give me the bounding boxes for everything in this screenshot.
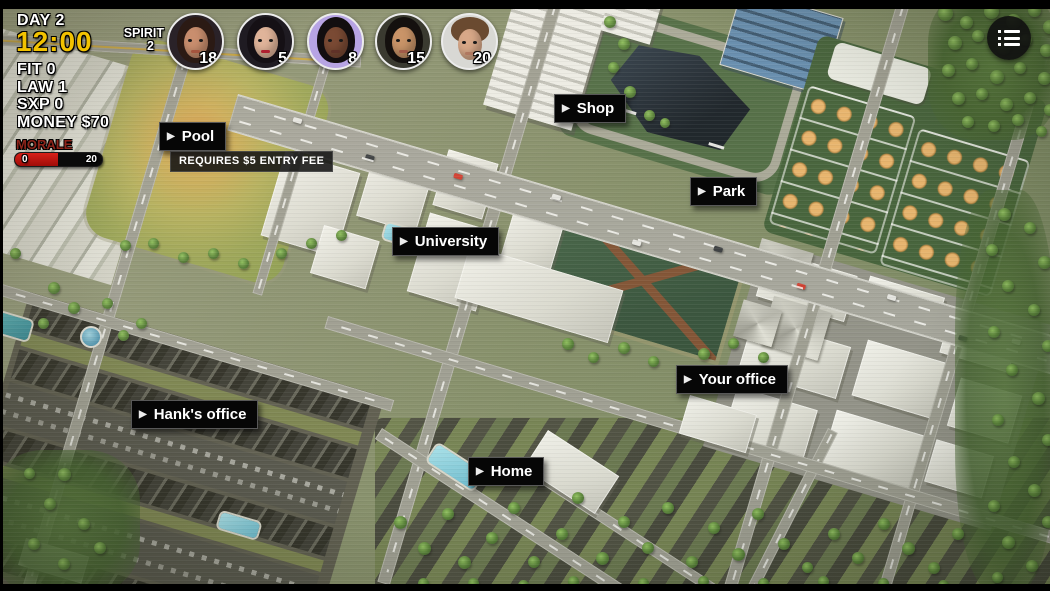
map-scenery [292, 117, 302, 124]
palm-tree [1006, 364, 1018, 376]
palm-tree [148, 238, 159, 249]
palm-tree [992, 414, 1004, 426]
portrait-value: 18 [199, 50, 217, 68]
palm-tree [48, 282, 60, 294]
palm-tree [596, 552, 609, 565]
map-scenery [887, 294, 897, 301]
palm-tree [10, 248, 21, 259]
map-scenery [453, 173, 463, 180]
palm-tree [1038, 72, 1050, 85]
location-label: Your office [699, 371, 776, 388]
location-university[interactable]: University [392, 227, 499, 256]
palm-tree [648, 356, 659, 367]
palm-tree [778, 538, 790, 550]
palm-tree [208, 248, 219, 259]
palm-tree [1036, 126, 1047, 137]
palm-tree [1002, 280, 1014, 292]
palm-tree [1028, 484, 1041, 497]
palm-tree [1008, 456, 1020, 468]
portrait-face [324, 27, 348, 58]
palm-tree [962, 116, 974, 128]
location-label: Hank's office [154, 406, 247, 423]
pointer-arrow-icon [476, 470, 484, 472]
portrait-3[interactable]: 8 [307, 13, 364, 70]
palm-tree [662, 502, 674, 514]
portrait-value: 15 [407, 50, 425, 68]
palm-tree [562, 338, 574, 350]
palm-tree [618, 516, 630, 528]
location-home[interactable]: Home [468, 457, 544, 486]
palm-tree [120, 240, 131, 251]
portrait-face [254, 27, 278, 58]
palm-tree [1024, 222, 1036, 234]
palm-tree [976, 88, 988, 100]
palm-tree [1002, 536, 1015, 549]
palm-tree [732, 548, 745, 561]
menu-button[interactable] [987, 16, 1031, 60]
palm-tree [418, 542, 431, 555]
letterbox-top [0, 0, 1050, 9]
palm-tree [1044, 104, 1050, 116]
game-screen: DAY 2 12:00 FIT 0 LAW 1 SXP 0 MONEY $70 … [0, 0, 1050, 591]
palm-tree [102, 298, 113, 309]
palm-tree [988, 120, 1000, 132]
letterbox-bottom [0, 584, 1050, 591]
palm-tree [1042, 434, 1050, 446]
portrait-5[interactable]: 20 [441, 13, 498, 70]
palm-tree [802, 562, 813, 573]
palm-tree [604, 16, 616, 28]
palm-tree [1038, 256, 1050, 269]
palm-tree [758, 352, 769, 363]
portrait-1[interactable]: 18 [167, 13, 224, 70]
portrait-2[interactable]: 5 [237, 13, 294, 70]
location-your-office[interactable]: Your office [676, 365, 788, 394]
portrait-value: 20 [473, 50, 491, 68]
palm-tree [942, 64, 955, 77]
palm-tree [28, 538, 40, 550]
palm-tree [752, 508, 764, 520]
water-tower [80, 326, 102, 348]
palm-tree [394, 516, 407, 529]
palm-tree [1024, 92, 1036, 104]
pointer-arrow-icon [562, 107, 570, 109]
letterbox-left [0, 0, 3, 591]
palm-tree [902, 542, 915, 555]
list-menu-icon [998, 27, 1021, 50]
map-scenery [365, 154, 375, 161]
palm-grove [955, 190, 1050, 590]
palm-tree [1012, 114, 1024, 126]
location-pool[interactable]: Pool [159, 122, 226, 151]
palm-tree [238, 258, 249, 269]
portrait-value: 8 [348, 50, 357, 68]
palm-tree [988, 500, 1000, 512]
palm-tree [642, 542, 654, 554]
palm-tree [928, 562, 940, 574]
palm-tree [852, 552, 864, 564]
palm-tree [38, 318, 49, 329]
palm-tree [44, 498, 56, 510]
location-park[interactable]: Park [690, 177, 757, 206]
palm-tree [952, 528, 964, 540]
palm-tree [588, 352, 599, 363]
palm-tree [94, 542, 106, 554]
palm-tree [960, 16, 973, 29]
palm-tree [118, 330, 129, 341]
palm-tree [986, 244, 998, 256]
palm-tree [276, 248, 287, 259]
palm-tree [660, 118, 670, 128]
palm-tree [306, 238, 317, 249]
palm-tree [1028, 304, 1040, 316]
palm-tree [618, 38, 630, 50]
palm-tree [998, 208, 1011, 221]
pointer-arrow-icon [400, 240, 408, 242]
palm-tree [1043, 20, 1050, 34]
palm-tree [1040, 44, 1050, 57]
palm-tree [644, 110, 655, 121]
palm-tree [528, 556, 540, 568]
palm-tree [992, 572, 1003, 583]
palm-tree [68, 302, 80, 314]
location-label: Pool [182, 128, 215, 145]
palm-tree [486, 532, 498, 544]
palm-tree [966, 58, 978, 70]
palm-tree [686, 556, 698, 568]
palm-tree [990, 70, 1004, 84]
palm-tree [828, 528, 840, 540]
location-label: Park [713, 183, 746, 200]
pointer-arrow-icon [139, 413, 147, 415]
palm-tree [878, 518, 890, 530]
palm-tree [58, 558, 70, 570]
palm-tree [1000, 98, 1013, 111]
map-scenery [551, 193, 561, 200]
location-label: Home [491, 463, 533, 480]
palm-tree [24, 468, 35, 479]
pointer-arrow-icon [167, 135, 175, 137]
palm-tree [508, 502, 520, 514]
palm-tree [698, 348, 710, 360]
palm-tree [442, 508, 454, 520]
location-label: Shop [577, 100, 615, 117]
palm-tree [136, 318, 147, 329]
palm-tree [1014, 62, 1026, 74]
palm-tree [948, 36, 962, 50]
portrait-value: 5 [278, 50, 287, 68]
palm-tree [952, 92, 965, 105]
palm-tree [78, 518, 90, 530]
palm-tree [556, 528, 568, 540]
location-hanks-office[interactable]: Hank's office [131, 400, 258, 429]
pointer-arrow-icon [684, 378, 692, 380]
map-scenery [632, 239, 642, 246]
palm-tree [972, 30, 984, 42]
palm-tree [1032, 392, 1045, 405]
location-shop[interactable]: Shop [554, 94, 626, 123]
palm-tree [336, 230, 347, 241]
palm-tree [458, 556, 471, 569]
palm-tree [1042, 516, 1050, 528]
palm-tree [728, 338, 739, 349]
palm-tree [572, 492, 584, 504]
palm-tree [1042, 340, 1050, 352]
palm-tree [988, 326, 1000, 338]
location-label: University [415, 233, 488, 250]
map-scenery [796, 283, 806, 290]
palm-tree [178, 252, 189, 263]
palm-tree [58, 468, 71, 481]
palm-tree [1026, 560, 1038, 572]
palm-tree [708, 522, 720, 534]
pointer-arrow-icon [698, 190, 706, 192]
palm-tree [618, 342, 630, 354]
portrait-4[interactable]: 15 [375, 13, 432, 70]
map-scenery [713, 246, 723, 253]
palm-tree [608, 62, 619, 73]
city-map [0, 0, 1050, 591]
